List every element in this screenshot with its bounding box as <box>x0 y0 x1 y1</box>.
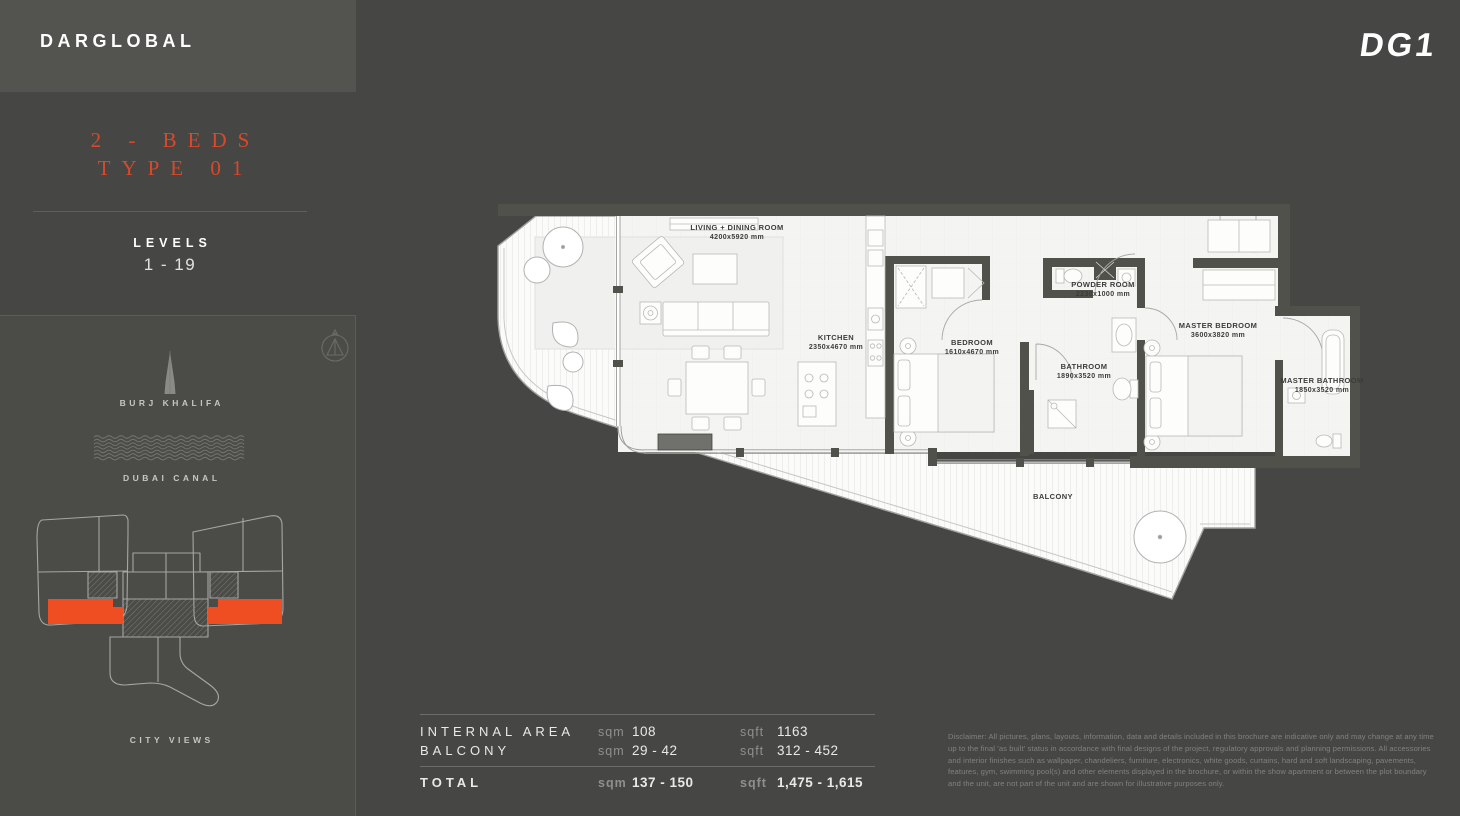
sqm-unit: sqm <box>598 744 632 758</box>
side-table <box>640 302 661 324</box>
room-label-bedroom: BEDROOM1610x4670 mm <box>945 338 999 357</box>
row-label: TOTAL <box>420 775 598 790</box>
sqm-unit: sqm <box>598 725 632 739</box>
room-label-master-bathroom: MASTER BATHROOM1850x3520 mm <box>1280 376 1363 395</box>
floor-plan-svg <box>488 190 1388 650</box>
sqm-unit: sqm <box>598 776 632 790</box>
area-row-internal: INTERNAL AREA sqm 108 sqft 1163 <box>420 722 875 741</box>
kitchen-island <box>798 362 836 426</box>
row-label: BALCONY <box>420 743 598 758</box>
highlighted-unit-left <box>48 599 123 624</box>
dg1-logo: DG1 <box>1357 26 1439 64</box>
unit-type-title: 2 - BEDS TYPE 01 <box>0 126 340 182</box>
sofa <box>663 302 769 336</box>
room-label-living: LIVING + DINING ROOM4200x5920 mm <box>690 223 783 242</box>
burj-khalifa-icon <box>154 350 186 396</box>
row-label: INTERNAL AREA <box>420 724 598 739</box>
room-label-kitchen: KITCHEN2350x4670 mm <box>809 333 863 352</box>
dubai-canal-label: DUBAI CANAL <box>0 473 340 483</box>
levels-label: LEVELS <box>0 236 340 250</box>
room-label-powder: POWDER ROOM2230x1000 mm <box>1071 280 1135 299</box>
entrance-closet <box>1208 220 1270 252</box>
brochure-page: DARGLOBAL 2 - BEDS TYPE 01 LEVELS 1 - 19… <box>0 0 1460 816</box>
sqft-unit: sqft <box>740 744 777 758</box>
coffee-table <box>693 254 737 284</box>
city-views-label: CITY VIEWS <box>0 735 340 745</box>
tv-console <box>658 434 712 450</box>
sqm-value: 29 - 42 <box>632 743 740 758</box>
sqft-unit: sqft <box>740 725 777 739</box>
unit-type-line2: TYPE 01 <box>0 154 340 182</box>
levels-value: 1 - 19 <box>0 255 340 275</box>
sqft-unit: sqft <box>740 776 777 790</box>
highlighted-unit-right <box>208 599 282 624</box>
title-divider <box>33 211 307 212</box>
sqft-value: 312 - 452 <box>777 743 875 758</box>
area-table: INTERNAL AREA sqm 108 sqft 1163 BALCONY … <box>420 714 875 792</box>
room-label-master-bedroom: MASTER BEDROOM3600x3820 mm <box>1179 321 1258 340</box>
sqft-value: 1,475 - 1,615 <box>777 775 875 790</box>
kitchen-counter <box>866 216 885 418</box>
burj-khalifa-label: BURJ KHALIFA <box>0 398 340 408</box>
sqm-value: 108 <box>632 724 740 739</box>
unit-type-line1: 2 - BEDS <box>0 126 340 154</box>
area-row-balcony: BALCONY sqm 29 - 42 sqft 312 - 452 <box>420 741 875 760</box>
canal-waves-icon <box>92 433 248 463</box>
sqft-value: 1163 <box>777 724 875 739</box>
building-footprint-keyplan <box>30 512 286 717</box>
darglobal-logo: DARGLOBAL <box>40 31 196 52</box>
area-row-total: TOTAL sqm 137 - 150 sqft 1,475 - 1,615 <box>420 766 875 792</box>
disclaimer-text: Disclaimer: All pictures, plans, layouts… <box>948 731 1440 790</box>
master-wardrobe <box>1203 270 1275 300</box>
room-label-balcony: BALCONY <box>1033 492 1073 502</box>
master-bed <box>1144 340 1242 450</box>
sqm-value: 137 - 150 <box>632 775 740 790</box>
room-label-bathroom: BATHROOM1890x3520 mm <box>1057 362 1111 381</box>
compass-north-icon <box>316 326 354 366</box>
